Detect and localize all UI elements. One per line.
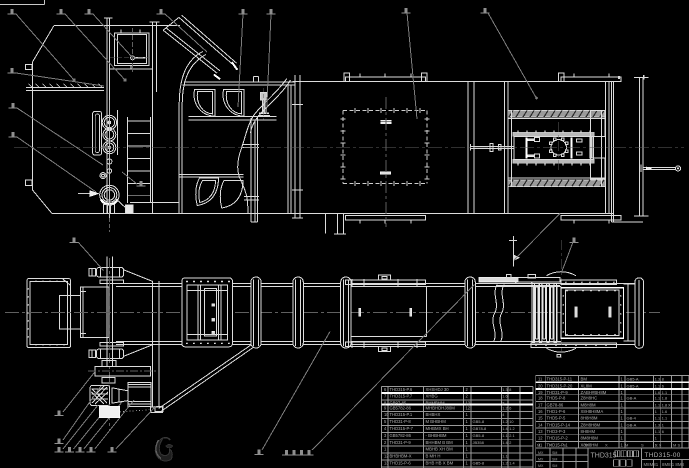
svg-text:GB5-8: GB5-8 [473, 461, 485, 466]
svg-text:18: 18 [538, 396, 543, 401]
svg-text:XHBG: XHBG [426, 394, 439, 399]
svg-text:THD31-P-8: THD31-P-8 [390, 419, 412, 424]
svg-text:B MH H: B MH H [426, 454, 441, 459]
svg-text:GB5-8: GB5-8 [473, 433, 485, 438]
svg-text:ZABH#BH8M: ZABH#BH8M [581, 390, 607, 395]
svg-text:BHB HB X BM: BHB HB X BM [426, 461, 454, 466]
svg-text:GB5782-86: GB5782-86 [390, 405, 412, 410]
svg-text:19: 19 [538, 390, 543, 395]
svg-text:XL8M: XL8M [581, 383, 593, 388]
svg-text:M: M [585, 443, 588, 448]
svg-text:GB78-86: GB78-86 [547, 402, 564, 407]
svg-text:GB-A: GB-A [627, 422, 637, 427]
svg-text:BM: BM [581, 377, 588, 382]
svg-text:THD15-P-2: THD15-P-2 [547, 436, 569, 441]
svg-text:M8H8M: M8H8M [581, 402, 596, 407]
svg-text:1.1: 1.1 [502, 434, 507, 438]
svg-text:S: S [563, 443, 566, 448]
svg-text:MHBHDHJ80M: MHBHDHJ80M [426, 405, 456, 410]
svg-text:1.2: 1.2 [509, 427, 514, 431]
svg-text:1.2: 1.2 [502, 420, 507, 424]
svg-text:THD1-P-6: THD1-P-6 [547, 409, 567, 414]
svg-text:1.1: 1.1 [655, 384, 660, 388]
svg-text:1.3: 1.3 [655, 378, 660, 382]
svg-text:M BHBHM: M BHBHM [426, 419, 447, 424]
svg-text:Z8H8H8M: Z8H8H8M [581, 422, 601, 427]
svg-text:- BHBHBM: - BHBHBM [426, 433, 447, 438]
svg-text:X8H8HM: X8H8HM [581, 442, 599, 447]
svg-text:BHBHBM-X: BHBHBM-X [390, 454, 412, 459]
svg-text:1: 1 [655, 437, 657, 441]
svg-text:8H8HM: 8H8HM [581, 429, 596, 434]
svg-text:15: 15 [538, 416, 543, 421]
svg-text:16: 16 [538, 409, 543, 414]
svg-text:8H8H8M: 8H8H8M [581, 416, 598, 421]
svg-text:MBHB XH BM: MBHB XH BM [426, 447, 454, 452]
svg-text:1.1: 1.1 [655, 430, 660, 434]
svg-text:17: 17 [538, 402, 543, 407]
svg-text:12: 12 [538, 436, 543, 441]
svg-text:M: M [625, 443, 628, 448]
svg-text:XHSHDJ 30: XHSHDJ 30 [426, 387, 450, 392]
svg-text:2.1: 2.1 [509, 434, 514, 438]
svg-text:GB5-A: GB5-A [627, 383, 639, 388]
svg-text:THD315-P.6: THD315-P.6 [390, 387, 413, 392]
svg-text:1: 1 [662, 423, 664, 427]
svg-text:GB5782-86: GB5782-86 [390, 433, 412, 438]
svg-text:12: 12 [384, 454, 389, 459]
svg-text:1: 1 [655, 410, 657, 414]
svg-text:THD5-P-8: THD5-P-8 [547, 396, 567, 401]
svg-text:SM: SM [552, 451, 557, 455]
svg-text:6: 6 [662, 384, 664, 388]
svg-text:SM: SM [552, 458, 557, 462]
svg-text:M8M81: M8M81 [644, 462, 659, 467]
svg-text:THD31-P-9: THD31-P-9 [390, 440, 412, 445]
svg-text:MX: MX [538, 464, 544, 468]
svg-text:8M8 1 8M8: 8M8 1 8M8 [662, 462, 685, 467]
svg-text:1.2: 1.2 [502, 462, 507, 466]
svg-text:GB78-8: GB78-8 [473, 426, 488, 431]
svg-text:1.1: 1.1 [655, 417, 660, 421]
svg-text:THD315-P-7: THD315-P-7 [390, 426, 414, 431]
svg-text:GB-A: GB-A [627, 396, 637, 401]
svg-text:BHBHX: BHBHX [426, 412, 441, 417]
svg-text:THD315: THD315 [591, 453, 617, 460]
svg-text:MX: MX [538, 451, 544, 455]
svg-text:1.3: 1.3 [502, 388, 507, 392]
svg-text:2: 2 [509, 441, 511, 445]
svg-text:13: 13 [538, 429, 543, 434]
svg-text:1.2: 1.2 [502, 406, 507, 410]
svg-text:1.4: 1.4 [502, 427, 507, 431]
svg-text:X X: X X [655, 443, 662, 448]
svg-text:MX: MX [538, 458, 544, 462]
svg-text:MHBMX BH: MHBMX BH [426, 426, 449, 431]
svg-text:1.1: 1.1 [662, 417, 667, 421]
svg-text:GB5-A: GB5-A [627, 377, 639, 382]
svg-text:1.1: 1.1 [502, 455, 507, 459]
svg-text:THD315-00: THD315-00 [645, 452, 681, 459]
svg-text:1.4: 1.4 [509, 462, 514, 466]
svg-text:20: 20 [538, 383, 543, 388]
svg-text:Z8H8HC: Z8H8HC [581, 396, 598, 401]
svg-text:6: 6 [662, 430, 664, 434]
svg-text:2: 2 [502, 402, 504, 406]
svg-text:THD15-P-14: THD15-P-14 [547, 422, 571, 427]
svg-text:THD315-P-20: THD315-P-20 [547, 383, 574, 388]
svg-text:10: 10 [384, 412, 389, 417]
svg-text:1.6: 1.6 [655, 391, 660, 395]
svg-text:THD315-P-11: THD315-P-11 [547, 377, 573, 382]
svg-text:THD5-P-5: THD5-P-5 [547, 416, 567, 421]
svg-text:M: M [537, 443, 540, 448]
svg-text:X: X [605, 443, 608, 448]
svg-text:11: 11 [538, 377, 543, 382]
svg-text:M S: M S [673, 443, 680, 448]
svg-text:1.3: 1.3 [655, 423, 660, 427]
svg-text:14: 14 [538, 422, 543, 427]
svg-text:1.8 X: 1.8 X [662, 403, 671, 407]
svg-text:JB358: JB358 [473, 440, 485, 445]
svg-text:THD315-P.1: THD315-P.1 [390, 412, 413, 417]
svg-text:THD3-P-3: THD3-P-3 [547, 429, 567, 434]
svg-text:1.4: 1.4 [502, 441, 507, 445]
svg-text:1.6: 1.6 [502, 395, 507, 399]
svg-text:8: 8 [662, 378, 664, 382]
svg-text:4: 4 [502, 413, 504, 417]
svg-text:THD31-P-9: THD31-P-9 [547, 390, 569, 395]
svg-text:1.1: 1.1 [662, 391, 667, 395]
svg-text:S: S [641, 443, 644, 448]
svg-text:1.1: 1.1 [655, 403, 660, 407]
svg-text:X: X [549, 443, 552, 448]
svg-text:THD315-P.7: THD315-P.7 [390, 394, 413, 399]
svg-text:GB5-8: GB5-8 [473, 419, 485, 424]
svg-text:1.1: 1.1 [655, 397, 660, 401]
svg-text:X8H8H8MA: X8H8H8MA [581, 409, 604, 414]
svg-text:1.6: 1.6 [662, 410, 667, 414]
svg-text:8: 8 [509, 388, 511, 392]
svg-text:THD15-P-6: THD15-P-6 [390, 461, 412, 466]
svg-text:12: 12 [466, 405, 471, 410]
svg-text:SM: SM [552, 464, 557, 468]
svg-text:6: 6 [509, 406, 511, 410]
svg-text:13: 13 [384, 461, 389, 466]
svg-text:1.8: 1.8 [662, 397, 667, 401]
svg-text:8M8H8M: 8M8H8M [581, 436, 599, 441]
svg-text:BHHBM B BM: BHHBM B BM [426, 440, 454, 445]
svg-text:10: 10 [509, 420, 513, 424]
svg-text:GB-4: GB-4 [627, 416, 637, 421]
